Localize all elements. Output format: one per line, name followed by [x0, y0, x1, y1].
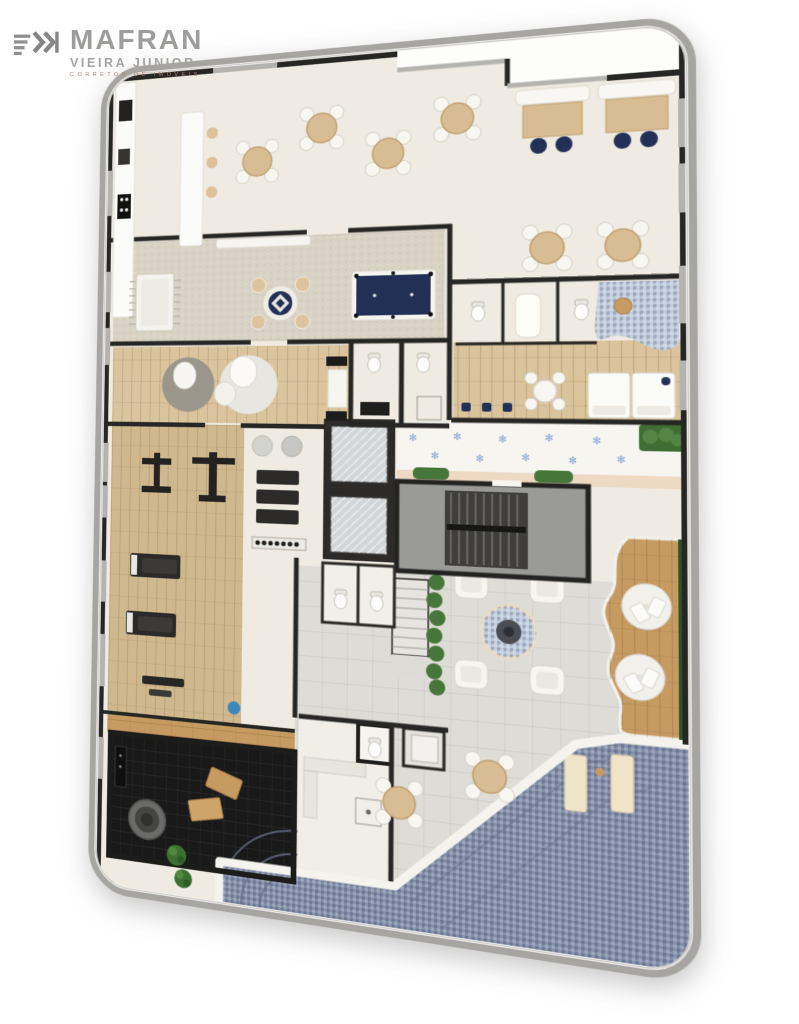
tv-unit: [326, 411, 347, 421]
pool-lounger: [565, 754, 587, 812]
booth-table: [523, 102, 582, 138]
service-lift-car: [411, 735, 437, 764]
toilet: [368, 353, 381, 372]
kids-chairs: [461, 403, 512, 412]
toilet: [370, 591, 383, 611]
elevator-cab-marble: [330, 496, 387, 554]
pouf: [214, 382, 236, 406]
toilet: [417, 353, 430, 372]
pouf: [173, 362, 196, 389]
bench: [303, 770, 317, 818]
splash-wood-step: [614, 298, 632, 315]
cabinet: [328, 370, 347, 408]
stair-landing: [392, 654, 428, 679]
toilet: [334, 589, 347, 609]
brand-logo: MAFRAN VIEIRA JUNIOR CORRETOR DE IMÓVEIS: [14, 26, 203, 78]
lavatories: [322, 563, 394, 627]
floorplan-tilted-canvas: ✻ ✻ ✻ ✻ ✻ ✻ ✻ ✻ ✻ ✻: [86, 12, 704, 988]
brand-tagline: CORRETOR DE IMÓVEIS: [70, 73, 203, 79]
toilet: [574, 300, 588, 320]
svg-text:✻: ✻: [475, 452, 484, 464]
fire-stairs: [396, 477, 588, 580]
nap-bed-pillow: [592, 405, 625, 414]
lounge-armchair: [530, 665, 565, 696]
svg-text:✻: ✻: [617, 453, 626, 465]
nap-bed-pillow: [637, 406, 671, 416]
foosball-table: [129, 273, 181, 331]
svg-text:✻: ✻: [431, 449, 439, 461]
svg-text:✻: ✻: [545, 432, 554, 444]
svg-text:✻: ✻: [453, 430, 462, 442]
floorplan-svg: ✻ ✻ ✻ ✻ ✻ ✻ ✻ ✻ ✻ ✻: [86, 12, 704, 988]
toilet: [368, 737, 381, 758]
tv-unit: [326, 356, 347, 366]
nap-bed-cushion: [661, 377, 670, 385]
bar-stool: [206, 156, 218, 169]
pouf: [230, 356, 257, 387]
kitchen-appliance: [118, 149, 130, 165]
elevator-cab-marble: [331, 426, 387, 483]
fire-stairs-door: [492, 480, 521, 487]
elevator-block: [323, 419, 396, 563]
toilet: [471, 302, 484, 322]
treadmill: [126, 610, 176, 637]
billiards-table: [351, 269, 435, 320]
svg-text:✻: ✻: [568, 454, 577, 466]
brand-title: MAFRAN: [70, 26, 203, 54]
bar-stool: [205, 185, 217, 198]
sauna-mat: [188, 797, 224, 821]
svg-text:✻: ✻: [498, 433, 507, 445]
lounge-armchair: [454, 659, 487, 690]
vanity: [360, 402, 389, 416]
svg-text:✻: ✻: [409, 432, 417, 444]
brand-subtitle: VIEIRA JUNIOR: [70, 57, 203, 70]
svg-text:✻: ✻: [592, 434, 601, 446]
brand-logo-icon: [14, 26, 60, 70]
kitchen-island: [179, 111, 203, 246]
booth-table: [606, 95, 668, 132]
kitchen-sink: [119, 100, 133, 122]
svg-text:✻: ✻: [521, 451, 530, 463]
floorplan: ✻ ✻ ✻ ✻ ✻ ✻ ✻ ✻ ✻ ✻: [84, 6, 708, 996]
treadmill: [130, 553, 180, 579]
pool-lounger: [611, 754, 634, 813]
changing-pad: [515, 294, 540, 338]
cooktop: [117, 194, 131, 219]
